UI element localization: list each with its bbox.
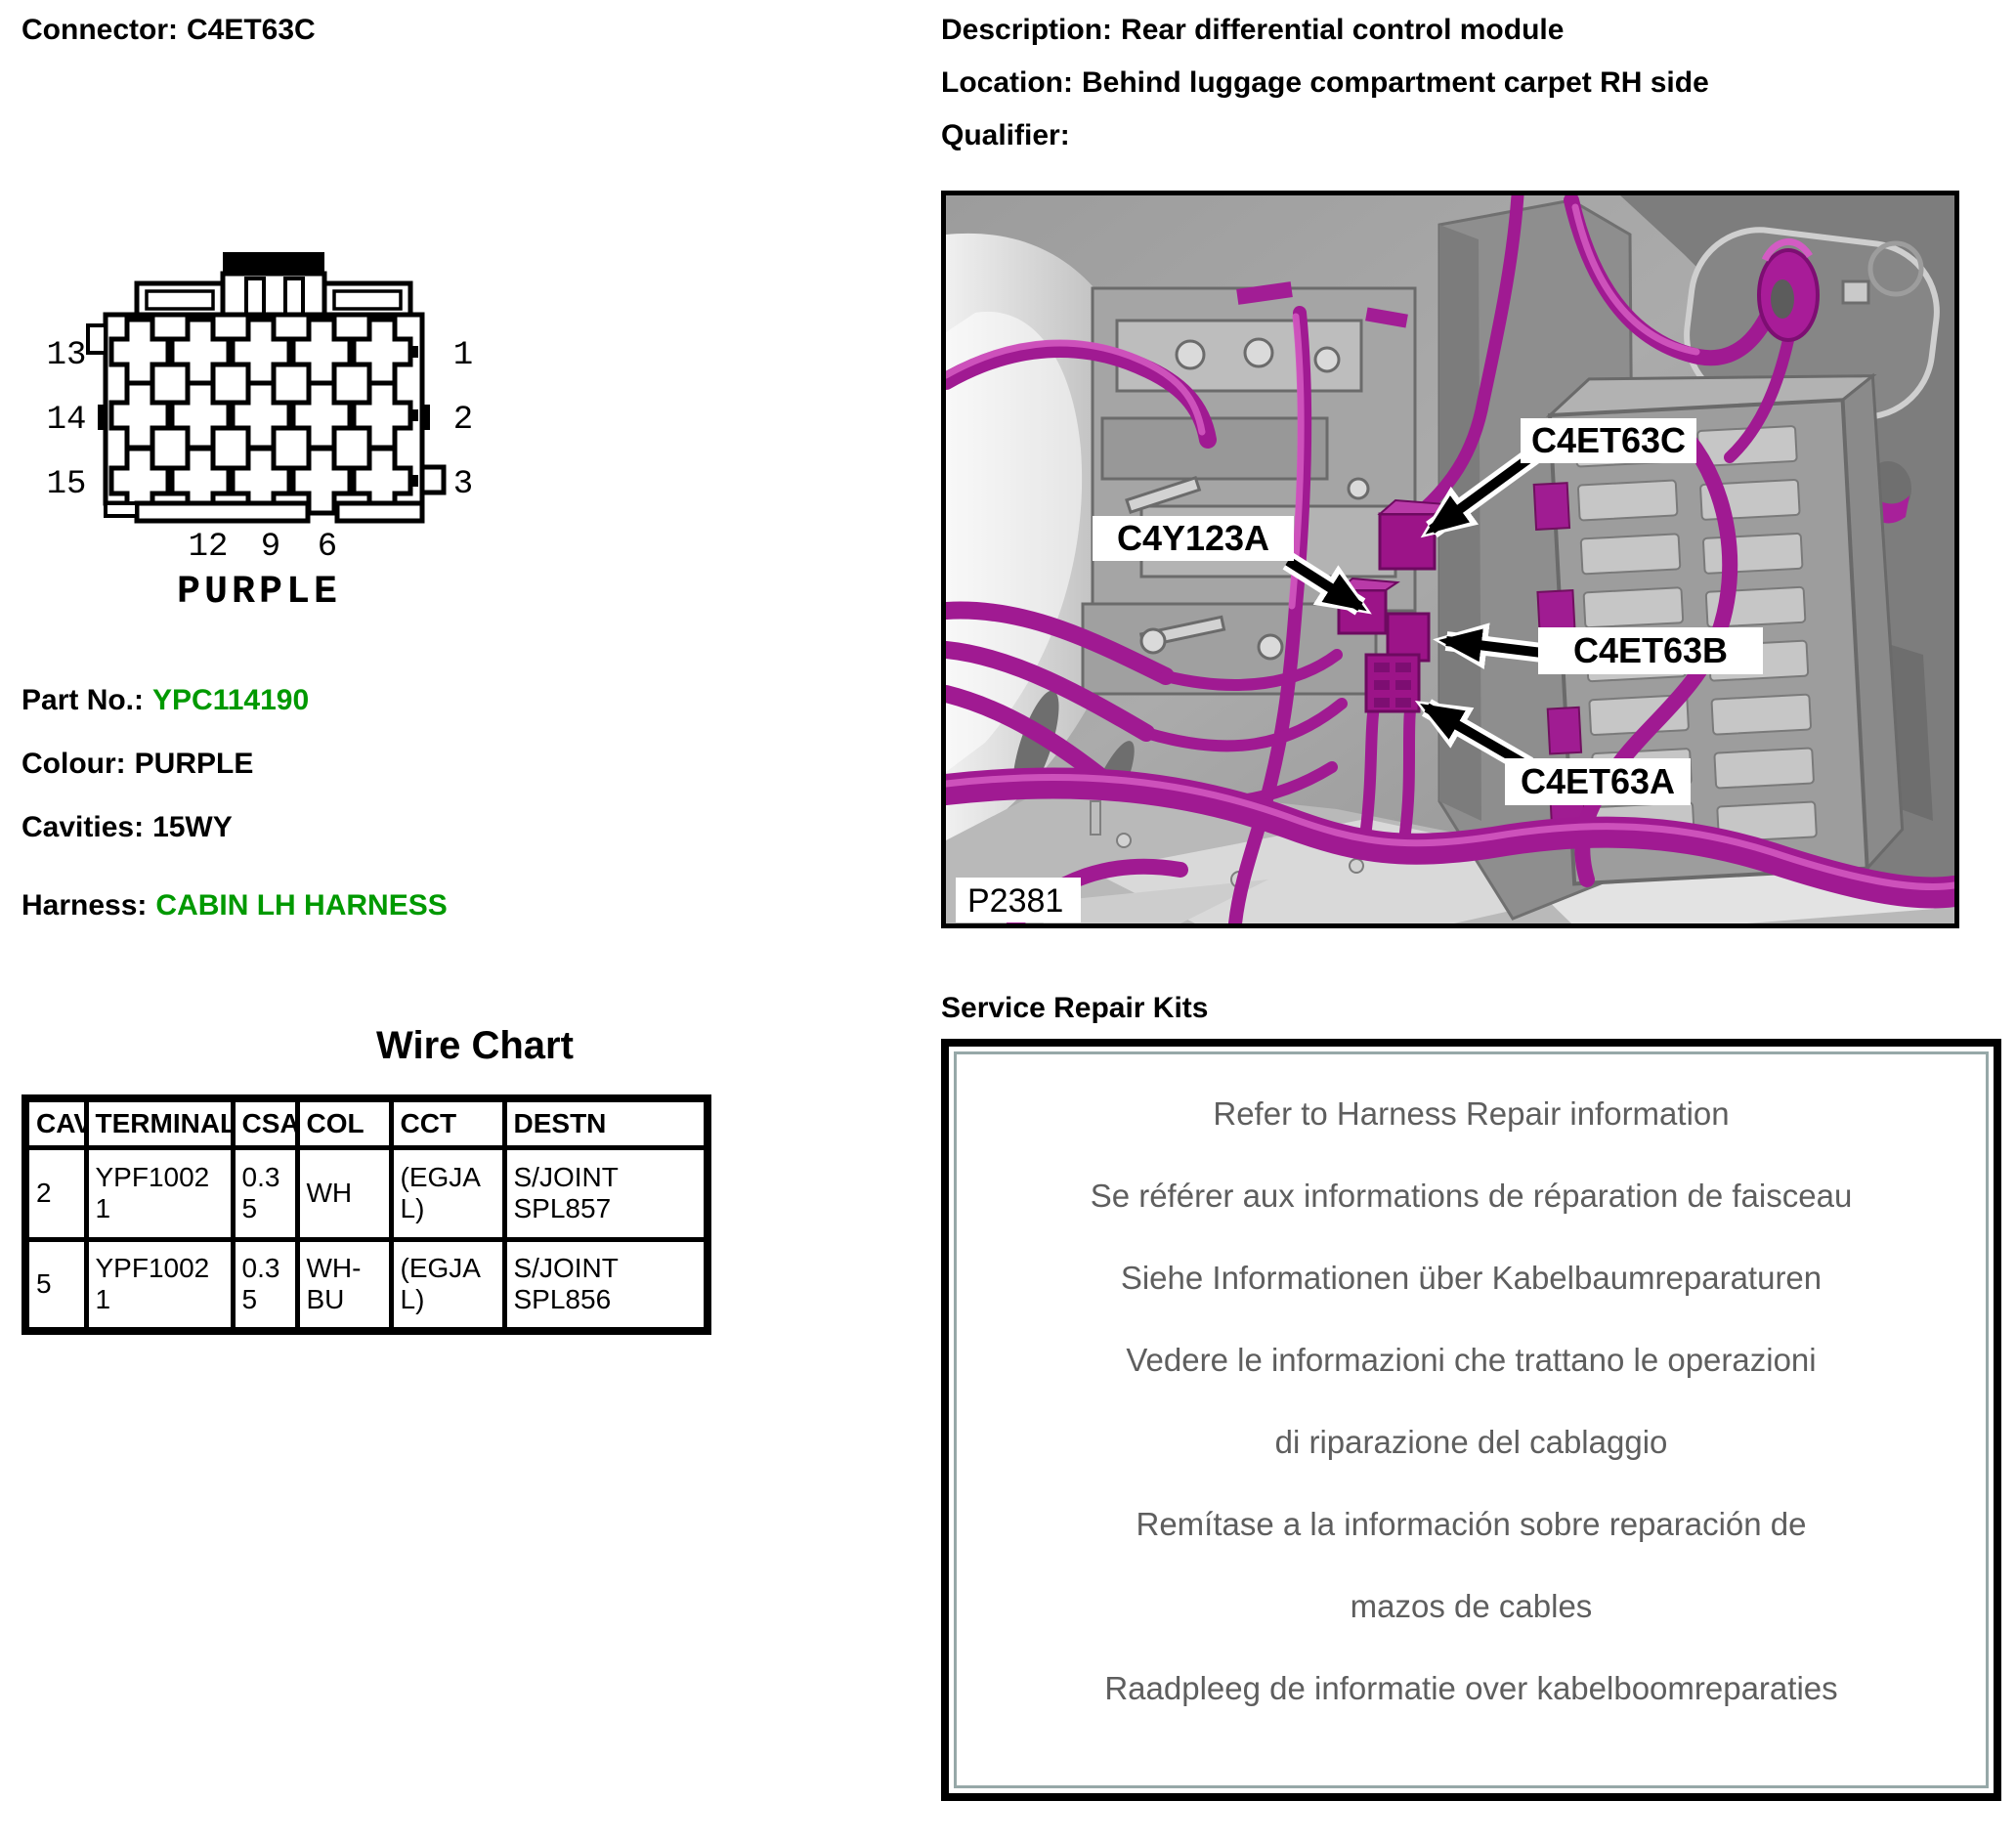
repair-info-line: Se référer aux informations de réparatio… bbox=[957, 1179, 1986, 1213]
repair-info-line: Remítase a la información sobre reparaci… bbox=[957, 1508, 1986, 1541]
colour-label: Colour: bbox=[21, 748, 126, 780]
cavities-value: 15WY bbox=[152, 811, 233, 843]
connector-header: Connector:C4ET63C bbox=[21, 14, 316, 47]
part-no-label: Part No.: bbox=[21, 684, 144, 716]
cell-col: WH-BU bbox=[297, 1239, 391, 1331]
qualifier-line: Qualifier: bbox=[941, 119, 1079, 152]
cell-cct: (EGJAL) bbox=[391, 1239, 504, 1331]
col-header-cct: CCT bbox=[391, 1098, 504, 1147]
cell-col: WH bbox=[297, 1147, 391, 1239]
pin-label-6: 6 bbox=[318, 529, 337, 566]
pin-grid bbox=[111, 320, 410, 513]
part-no-line: Part No.:YPC114190 bbox=[21, 684, 309, 717]
callout-c4et63c: C4ET63C bbox=[1531, 420, 1686, 460]
connector-value: C4ET63C bbox=[187, 14, 316, 46]
pin-label-12: 12 bbox=[189, 529, 229, 566]
cell-cav: 5 bbox=[25, 1239, 86, 1331]
connector-documentation-page: Connector:C4ET63C Description:Rear diffe… bbox=[0, 0, 2016, 1844]
figure-id-label: P2381 bbox=[967, 882, 1063, 920]
wire-chart-title: Wire Chart bbox=[0, 1024, 950, 1068]
wire-chart-header-row: CAV TERMINAL CSA COL CCT DESTN bbox=[25, 1098, 708, 1147]
pin-label-1: 1 bbox=[453, 337, 473, 374]
colour-value: PURPLE bbox=[135, 748, 254, 780]
qualifier-label: Qualifier: bbox=[941, 119, 1070, 151]
location-label: Location: bbox=[941, 66, 1073, 99]
cell-destn: S/JOINT SPL856 bbox=[504, 1239, 708, 1331]
col-header-col: COL bbox=[297, 1098, 391, 1147]
connector-colour-caption: PURPLE bbox=[177, 571, 341, 614]
cell-cav: 2 bbox=[25, 1147, 86, 1239]
cavities-label: Cavities: bbox=[21, 811, 144, 843]
cavities-line: Cavities:15WY bbox=[21, 811, 233, 844]
service-repair-kits-box: Refer to Harness Repair information Se r… bbox=[941, 1039, 2001, 1801]
description-line: Description:Rear differential control mo… bbox=[941, 14, 1564, 47]
colour-line: Colour:PURPLE bbox=[21, 748, 253, 781]
repair-info-line: Vedere le informazioni che trattano le o… bbox=[957, 1344, 1986, 1377]
cell-csa: 0.35 bbox=[233, 1147, 297, 1239]
harness-label: Harness: bbox=[21, 889, 147, 922]
connector-label: Connector: bbox=[21, 14, 178, 46]
description-label: Description: bbox=[941, 14, 1112, 46]
cell-terminal: YPF10021 bbox=[86, 1239, 233, 1331]
callout-c4et63a: C4ET63A bbox=[1521, 761, 1675, 801]
pin-label-15: 15 bbox=[47, 466, 87, 503]
pinout-svg: 13 14 15 1 2 3 12 9 6 PURPLE bbox=[29, 233, 489, 614]
callout-c4et63b: C4ET63B bbox=[1573, 630, 1728, 670]
table-row: 2 YPF10021 0.35 WH (EGJAL) S/JOINT SPL85… bbox=[25, 1147, 708, 1239]
harness-line: Harness:CABIN LH HARNESS bbox=[21, 889, 448, 922]
description-value: Rear differential control module bbox=[1121, 14, 1564, 46]
connector-key-tab bbox=[223, 252, 324, 274]
col-header-terminal: TERMINAL bbox=[86, 1098, 233, 1147]
connector-pinout-diagram: 13 14 15 1 2 3 12 9 6 PURPLE bbox=[29, 233, 489, 619]
cell-csa: 0.35 bbox=[233, 1239, 297, 1331]
repair-info-line: di riparazione del cablaggio bbox=[957, 1426, 1986, 1459]
service-repair-kits-title: Service Repair Kits bbox=[941, 992, 1208, 1025]
harness-location-photo: C4ET63C C4Y123A C4ET63B C4ET63A P2381 bbox=[941, 191, 1959, 928]
service-repair-kits-content: Refer to Harness Repair information Se r… bbox=[954, 1051, 1989, 1788]
pin-label-13: 13 bbox=[47, 337, 87, 374]
cell-cct: (EGJAL) bbox=[391, 1147, 504, 1239]
callout-c4y123a: C4Y123A bbox=[1117, 518, 1269, 558]
repair-info-line: Siehe Informationen über Kabelbaumrepara… bbox=[957, 1262, 1986, 1295]
location-value: Behind luggage compartment carpet RH sid… bbox=[1082, 66, 1709, 99]
table-row: 5 YPF10021 0.35 WH-BU (EGJAL) S/JOINT SP… bbox=[25, 1239, 708, 1331]
pin-label-9: 9 bbox=[261, 529, 280, 566]
repair-info-line: Refer to Harness Repair information bbox=[957, 1097, 1986, 1131]
harness-value: CABIN LH HARNESS bbox=[155, 889, 447, 922]
cell-terminal: YPF10021 bbox=[86, 1147, 233, 1239]
wire-chart-table: CAV TERMINAL CSA COL CCT DESTN 2 YPF1002… bbox=[21, 1094, 711, 1335]
pin-label-3: 3 bbox=[453, 466, 473, 503]
part-no-value: YPC114190 bbox=[152, 684, 309, 716]
pin-label-2: 2 bbox=[453, 402, 473, 439]
repair-info-line: Raadpleeg de informatie over kabelboomre… bbox=[957, 1672, 1986, 1705]
cell-destn: S/JOINT SPL857 bbox=[504, 1147, 708, 1239]
col-header-destn: DESTN bbox=[504, 1098, 708, 1147]
repair-info-line: mazos de cables bbox=[957, 1590, 1986, 1623]
pin-label-14: 14 bbox=[47, 402, 87, 439]
col-header-cav: CAV bbox=[25, 1098, 86, 1147]
grommet-ring bbox=[1759, 241, 1818, 340]
col-header-csa: CSA bbox=[233, 1098, 297, 1147]
location-line: Location:Behind luggage compartment carp… bbox=[941, 66, 1709, 100]
harness-photo-svg: C4ET63C C4Y123A C4ET63B C4ET63A P2381 bbox=[946, 195, 1954, 923]
